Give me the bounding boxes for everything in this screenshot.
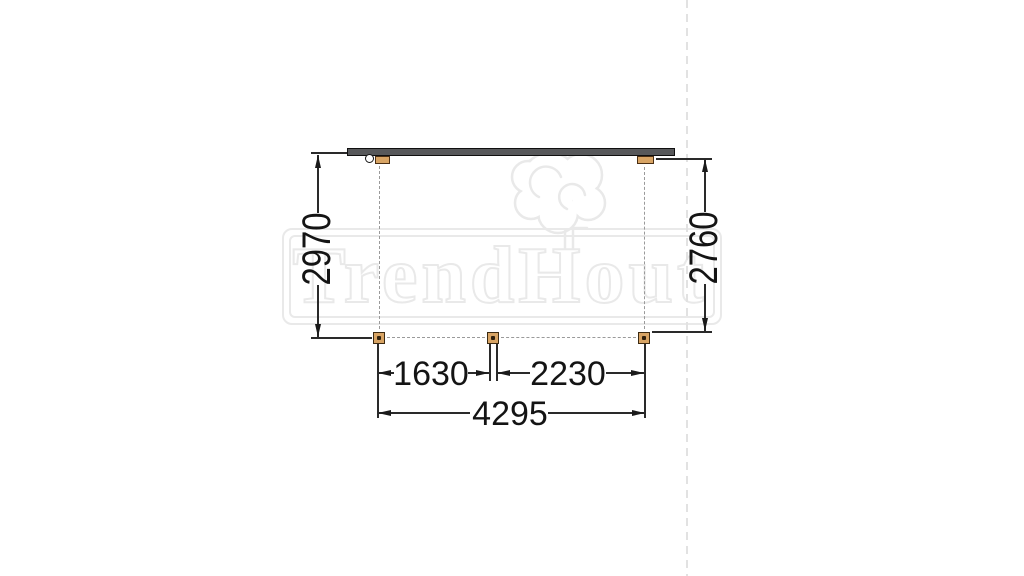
arrowhead-left xyxy=(378,410,391,416)
page-reference-dashed-line xyxy=(686,0,688,576)
arrowhead-down xyxy=(702,318,708,331)
post-bottom-left xyxy=(373,332,385,344)
post-line-dashed-left-bay xyxy=(387,337,485,338)
dimension-label-bay-right: 2230 xyxy=(530,357,606,391)
arrowhead-down xyxy=(315,324,321,337)
dimension-label-width-total: 4295 xyxy=(472,397,548,431)
arrowhead-left xyxy=(497,370,510,376)
post-anchor-dot xyxy=(491,336,495,340)
post-bottom-right xyxy=(638,332,650,344)
extension-line xyxy=(377,344,379,418)
extension-line xyxy=(644,344,646,418)
roof-edge-beam xyxy=(347,148,675,156)
arrowhead-left xyxy=(378,370,391,376)
arrowhead-right xyxy=(476,370,489,376)
post-anchor-dot xyxy=(377,336,381,340)
reference-dashed-left xyxy=(379,166,380,329)
dimension-label-bay-left: 1630 xyxy=(393,357,469,391)
drainpipe-circle xyxy=(365,154,374,163)
arrowhead-up xyxy=(702,159,708,172)
arrowhead-up xyxy=(315,155,321,168)
post-bottom-middle xyxy=(487,332,499,344)
dimension-line xyxy=(548,412,645,414)
extension-line xyxy=(652,331,712,333)
dimension-label-depth-right: 2760 xyxy=(684,212,724,285)
post-top-left xyxy=(375,156,390,164)
extension-line xyxy=(311,337,372,339)
post-anchor-dot xyxy=(642,336,646,340)
extension-line xyxy=(489,344,491,381)
watermark-text: TrendHout xyxy=(292,236,707,316)
construction-drawing-canvas: TrendHout 2970 2760 1630 xyxy=(0,0,1024,576)
arrowhead-right xyxy=(631,370,644,376)
dimension-line xyxy=(378,412,470,414)
post-top-right xyxy=(637,156,654,164)
arrowhead-right xyxy=(632,410,645,416)
post-line-dashed-right-bay xyxy=(501,337,636,338)
dimension-label-depth-left: 2970 xyxy=(297,213,337,286)
reference-dashed-right xyxy=(644,167,645,329)
extension-line xyxy=(311,152,347,154)
